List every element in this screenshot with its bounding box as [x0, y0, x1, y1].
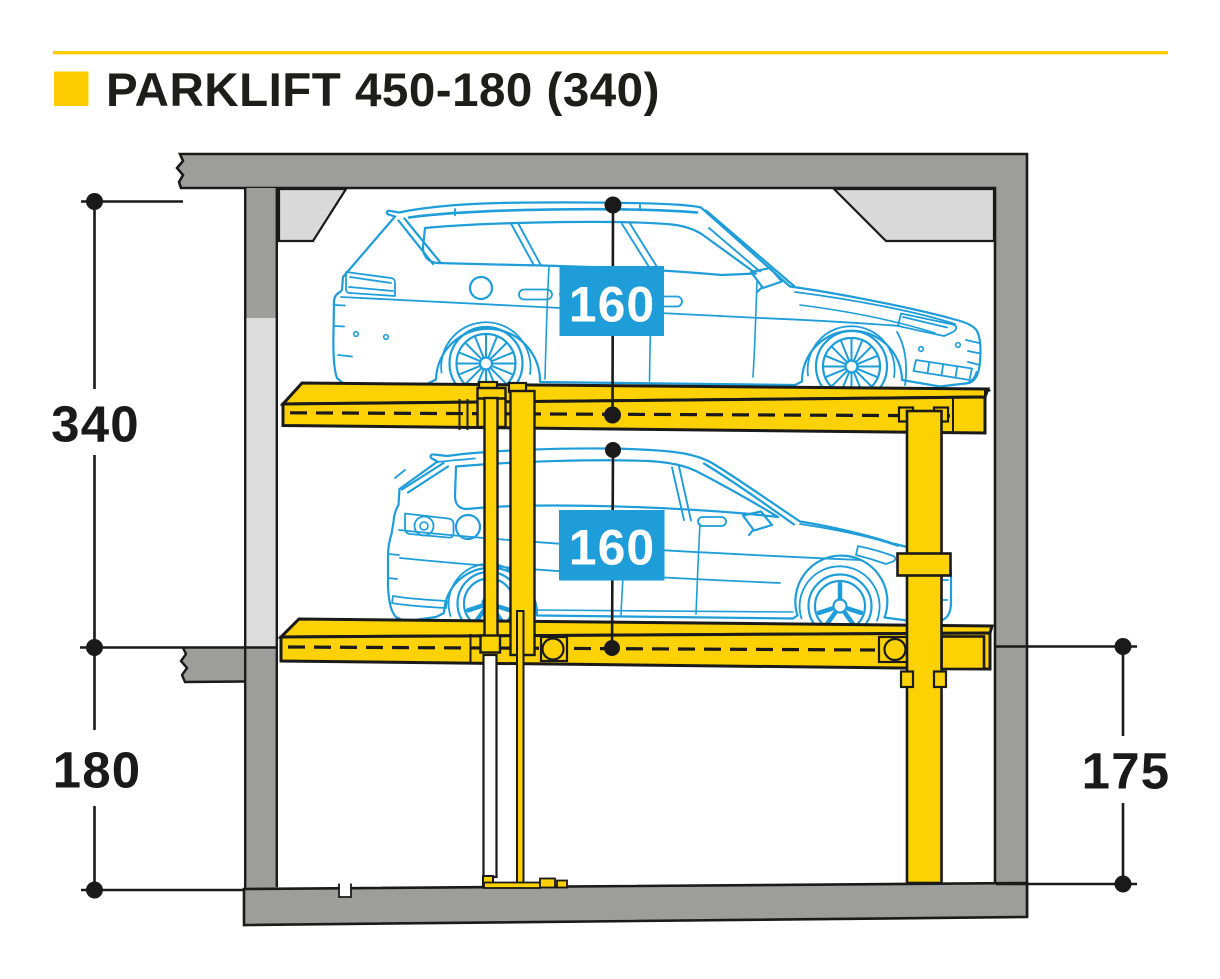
svg-text:175: 175: [1082, 743, 1171, 800]
svg-text:340: 340: [51, 396, 140, 453]
svg-text:180: 180: [53, 742, 142, 799]
svg-text:PARKLIFT 450-180 (340): PARKLIFT 450-180 (340): [106, 64, 660, 117]
svg-text:160: 160: [569, 277, 655, 333]
svg-text:160: 160: [569, 520, 655, 576]
